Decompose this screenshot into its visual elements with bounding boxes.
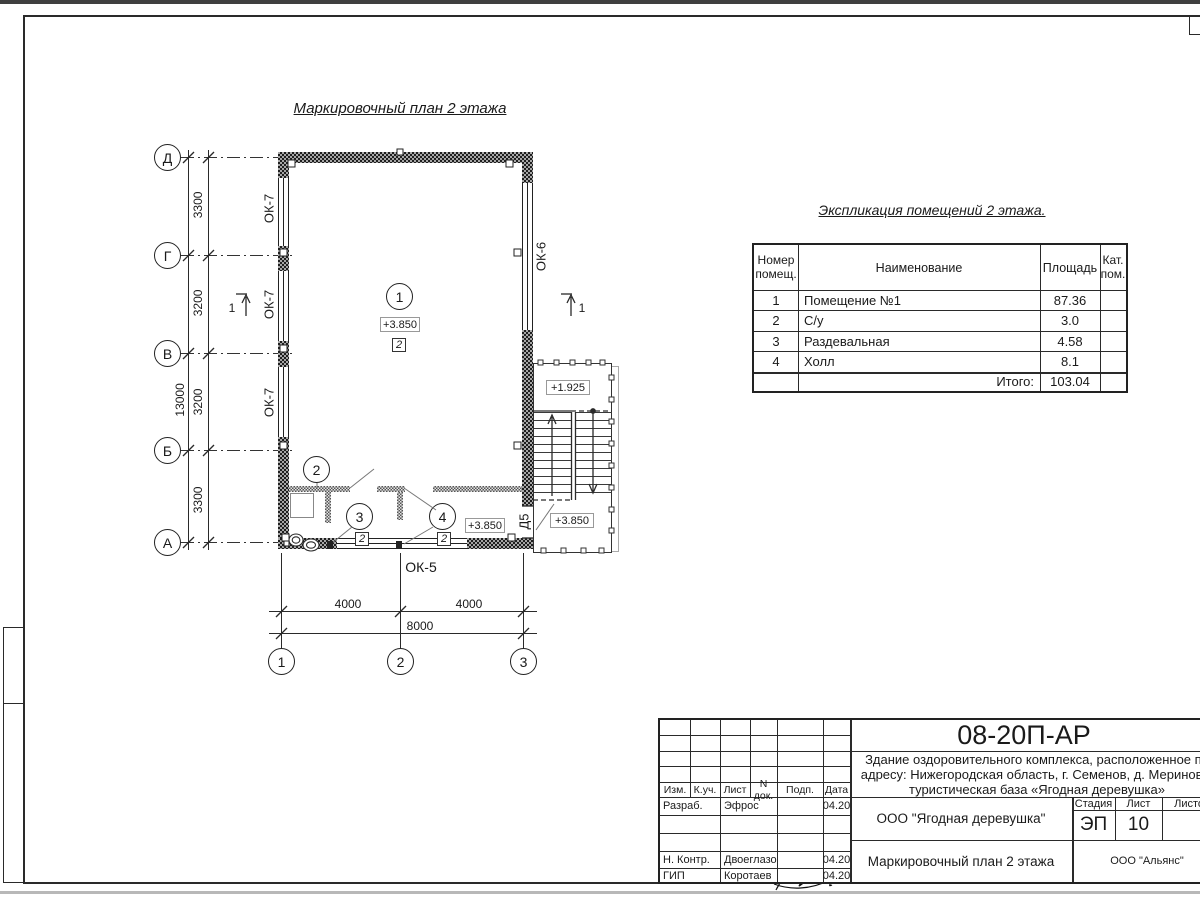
shower-tray <box>290 493 314 518</box>
window-label-ok7: ОК-7 <box>263 380 278 424</box>
axis-circle-A: А <box>154 529 181 556</box>
dim-text-total: 8000 <box>390 620 450 634</box>
stair-flight-right <box>576 412 612 500</box>
tb-col-izm: Изм. <box>660 782 690 797</box>
tb-role: Разраб. <box>663 797 720 815</box>
drawing-sheet: Маркировочный план 2 этажа Д Г В Б А 330… <box>0 0 1200 900</box>
tb-col-data: Дата <box>823 782 850 797</box>
axis-circle-V: В <box>154 340 181 367</box>
wall-left-pier <box>278 152 289 178</box>
finish-mark: 2 <box>392 338 406 352</box>
section-arrow-right <box>561 294 575 316</box>
table-row-num: 4 <box>754 351 798 372</box>
table-row-name: Раздевальная <box>804 331 1034 351</box>
explication-table: Номер помещ. Наименование Площадь Кат. п… <box>752 243 1128 393</box>
window-left-3 <box>278 367 289 437</box>
dim-text: 3300 <box>192 175 206 235</box>
window-label-ok7: ОК-7 <box>263 282 278 326</box>
door-swing <box>350 469 374 488</box>
axis-label: А <box>163 535 172 551</box>
sheet-label: Лист <box>1115 797 1162 810</box>
room-number: 2 <box>313 462 321 478</box>
window-left-1 <box>278 178 289 246</box>
axis-label: Б <box>163 443 172 459</box>
wall-bottom-left <box>278 538 337 549</box>
partition <box>433 486 522 492</box>
tb-hline <box>660 833 850 834</box>
room-number: 3 <box>356 509 364 525</box>
doc-number: 08-20П-АР <box>850 720 1198 751</box>
finish-mark: 2 <box>437 532 451 546</box>
door-label-d5: Д5 <box>518 506 533 536</box>
axis-circle-D: Д <box>154 144 181 171</box>
axis-circle-G: Г <box>154 242 181 269</box>
tb-name: Двоеглазов <box>724 851 777 868</box>
tb-hline <box>660 815 850 816</box>
tb-role: ГИП <box>663 868 720 884</box>
dim-text: 4000 <box>439 598 499 612</box>
section-label: 1 <box>576 302 588 316</box>
project-description: Здание оздоровительного комплекса, распо… <box>850 752 1200 797</box>
table-row-area: 4.58 <box>1040 331 1100 351</box>
axis-label: Д <box>163 150 172 166</box>
col-header-area: Площадь <box>1040 245 1100 290</box>
elevation-hall: +3.850 <box>465 518 505 533</box>
wall-left-pier <box>278 341 289 367</box>
tb-hline <box>660 751 850 752</box>
tb-col-ndok: N док. <box>750 782 777 797</box>
wall-top <box>278 152 533 163</box>
axis-circle-1: 1 <box>268 648 295 675</box>
axis-label: 3 <box>520 654 528 670</box>
wall-right-mid <box>522 330 533 506</box>
total-label: Итого: <box>798 372 1034 391</box>
elevation-stair-lower: +3.850 <box>550 513 594 528</box>
dim-line-chain-left <box>208 150 209 550</box>
stair-flight-left <box>534 412 571 500</box>
tb-col-kuch: К.уч. <box>690 782 720 797</box>
axis-circle-B: Б <box>154 437 181 464</box>
table-row-name: Холл <box>804 351 1034 372</box>
elevation-stair-upper: +1.925 <box>546 380 590 395</box>
tb-role: Н. Контр. <box>663 851 720 868</box>
window-label-ok6: ОК-6 <box>535 234 550 278</box>
dim-line-total-left <box>188 150 189 550</box>
total-value: 103.04 <box>1040 372 1100 391</box>
col-header-number: Номер помещ. <box>754 245 798 290</box>
tb-date: 04.20 <box>823 851 850 868</box>
page-top-bar <box>0 0 1200 4</box>
axis-label: 2 <box>397 654 405 670</box>
partition <box>289 486 350 492</box>
room-mark-1: 1 <box>386 283 413 310</box>
window-right-ok6 <box>522 183 533 330</box>
room-mark-3: 3 <box>346 503 373 530</box>
frame-top <box>23 15 1200 17</box>
table-row-area: 87.36 <box>1040 290 1100 310</box>
margin-box-bottom <box>3 703 24 883</box>
door-swing <box>404 488 436 510</box>
tb-vline <box>720 720 721 882</box>
description-line: Здание оздоровительного комплекса, распо… <box>850 752 1200 767</box>
wall-right-pier <box>522 152 533 183</box>
tb-hline <box>660 735 850 736</box>
sheet-value: 10 <box>1115 810 1162 840</box>
table-row-name: С/у <box>804 310 1034 331</box>
corner-box <box>1189 16 1200 35</box>
axis-label: В <box>163 346 172 362</box>
stage-label: Стадия <box>1072 797 1115 810</box>
axis-circle-3: 3 <box>510 648 537 675</box>
dim-text: 4000 <box>318 598 378 612</box>
window-label-ok7: ОК-7 <box>263 186 278 230</box>
axis-label: Г <box>164 248 172 264</box>
table-row-num: 2 <box>754 310 798 331</box>
room-mark-4: 4 <box>429 503 456 530</box>
wall-bottom-right <box>467 538 533 549</box>
axis-circle-2: 2 <box>387 648 414 675</box>
sheet-title: Маркировочный план 2 этажа <box>850 840 1072 882</box>
dim-text: 3200 <box>192 372 206 432</box>
room-number: 1 <box>396 289 404 305</box>
table-row-area: 8.1 <box>1040 351 1100 372</box>
tb-date: 04.20 <box>823 868 850 884</box>
wall-left-lower <box>278 437 289 549</box>
section-label: 1 <box>226 302 238 316</box>
tb-date: 04.20 <box>823 797 850 815</box>
client-name: ООО "Ягодная деревушка" <box>850 797 1072 840</box>
room-number: 4 <box>439 509 447 525</box>
table-row-num: 1 <box>754 290 798 310</box>
dim-text: 3300 <box>192 470 206 530</box>
margin-box-top <box>3 627 24 704</box>
room-mark-2: 2 <box>303 456 330 483</box>
table-row-name: Помещение №1 <box>804 290 1034 310</box>
tb-hline <box>660 766 850 767</box>
sheets-label: Листов <box>1162 797 1200 810</box>
section-arrow-left <box>236 294 250 316</box>
window-left-2 <box>278 271 289 341</box>
tb-name: Эфрос <box>724 797 777 815</box>
partition-stub <box>397 492 403 520</box>
dim-text-total: 13000 <box>174 365 188 435</box>
wall-left-pier <box>278 246 289 271</box>
page-bottom-edge <box>0 891 1200 894</box>
axis-label: 1 <box>278 654 286 670</box>
description-line: туристическая база «Ягодная деревушка» <box>850 782 1200 797</box>
stage-value: ЭП <box>1072 810 1115 840</box>
tb-col-podp: Подп. <box>777 782 823 797</box>
elevation-main: +3.850 <box>380 317 420 332</box>
tb-vline <box>777 720 778 882</box>
partition-stub <box>325 492 331 523</box>
col-header-name: Наименование <box>798 245 1040 290</box>
title-block: Изм. К.уч. Лист N док. Подп. Дата Разраб… <box>658 718 1200 884</box>
description-line: адресу: Нижегородская область, г. Семено… <box>850 767 1200 782</box>
finish-mark: 2 <box>355 532 369 546</box>
plan-title: Маркировочный план 2 этажа <box>288 100 512 117</box>
tb-col-list: Лист <box>720 782 750 797</box>
table-row-area: 3.0 <box>1040 310 1100 331</box>
col-header-cat: Кат. пом. <box>1100 245 1126 290</box>
dim-text: 3200 <box>192 273 206 333</box>
company-name: ООО "Альянс" <box>1072 840 1200 882</box>
tb-name: Коротаев <box>724 868 777 884</box>
explication-title: Экспликация помещений 2 этажа. <box>800 202 1064 218</box>
table-row-num: 3 <box>754 331 798 351</box>
